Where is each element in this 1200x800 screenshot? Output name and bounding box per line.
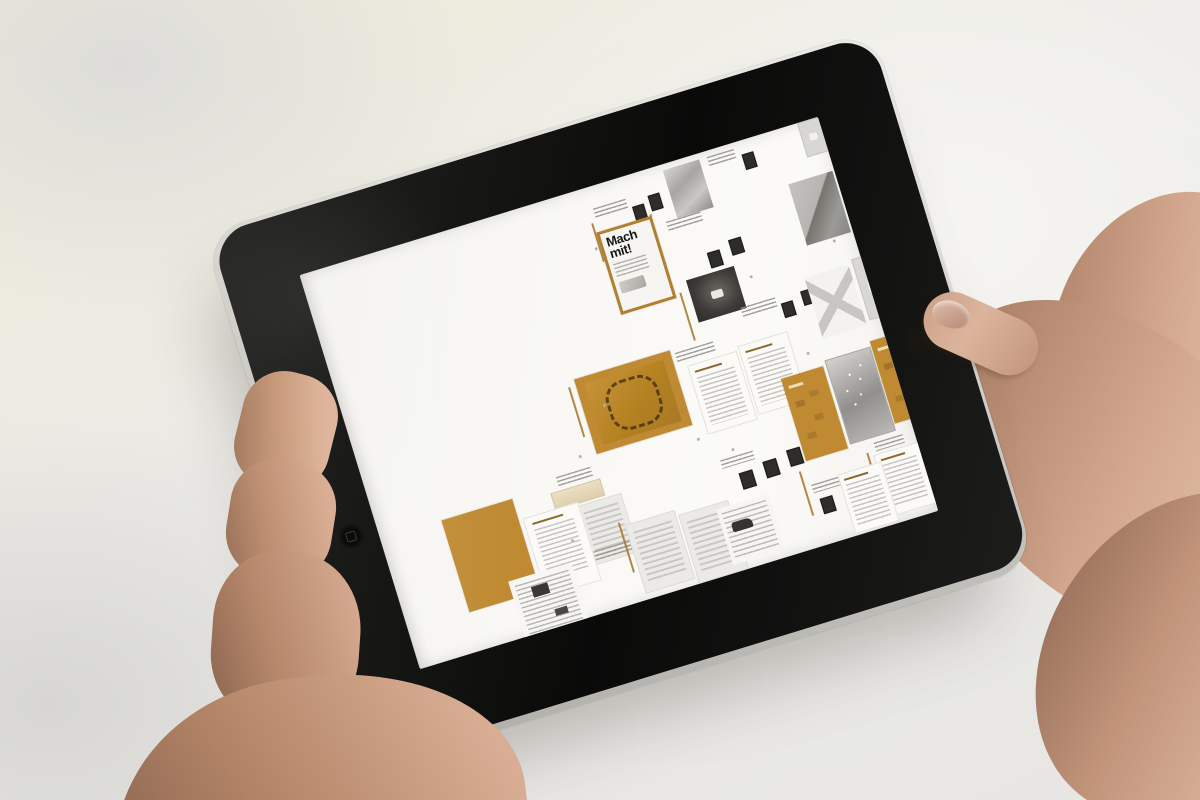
caption-lines — [720, 450, 755, 469]
photo-thumbnail[interactable] — [739, 469, 757, 489]
page-marker — [806, 352, 810, 356]
photo-thumbnail[interactable] — [762, 458, 780, 478]
page-marker — [594, 247, 598, 251]
page-marker — [578, 455, 582, 459]
page-marker — [749, 275, 753, 279]
photo-thumbnail[interactable] — [728, 237, 745, 256]
flatplan-canvas[interactable] — [300, 117, 939, 669]
caption-lines — [707, 149, 737, 167]
page-thumbnail[interactable] — [797, 117, 830, 158]
spine-divider — [799, 471, 814, 516]
photo-thumbnail[interactable] — [742, 151, 758, 170]
home-button[interactable] — [337, 523, 364, 550]
page-thumbnail[interactable] — [574, 350, 692, 454]
page-marker — [697, 437, 701, 441]
photo-scene: Mach mit! — [0, 0, 1200, 800]
page-thumbnail[interactable] — [788, 171, 851, 246]
caption-lines — [740, 297, 777, 317]
photo-thumbnail[interactable] — [707, 249, 724, 268]
tablet-screen: Mach mit! — [300, 117, 939, 669]
page-thumbnail[interactable] — [686, 266, 747, 323]
photo-thumbnail[interactable] — [648, 193, 664, 212]
caption-lines — [593, 199, 628, 219]
photo-thumbnail[interactable] — [820, 495, 837, 514]
page-marker — [832, 239, 836, 243]
page-thumbnail[interactable] — [663, 159, 714, 218]
page-marker — [731, 448, 735, 452]
photo-thumbnail[interactable] — [781, 300, 797, 318]
